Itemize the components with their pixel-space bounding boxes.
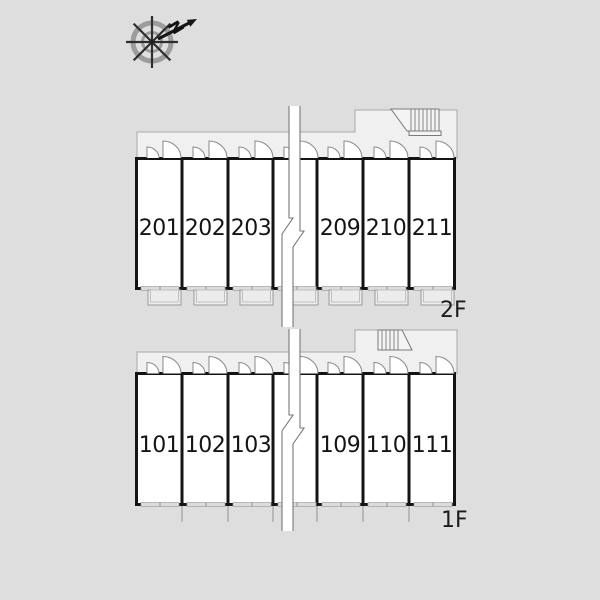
unit-number-111: 111 (409, 435, 455, 457)
balcony-icon (375, 290, 408, 305)
window-icon (233, 503, 271, 507)
balconies-2f (148, 290, 454, 305)
window-icon (187, 503, 225, 507)
unit-windows-1f (141, 503, 452, 507)
window-icon (322, 503, 360, 507)
window-icon (141, 503, 179, 507)
balcony-icon (329, 290, 362, 305)
floor-label-2f: 2F (440, 300, 467, 322)
unit-number-110: 110 (363, 435, 409, 457)
unit-number-211: 211 (409, 218, 455, 240)
unit-number-202: 202 (182, 218, 228, 240)
compass-rose-icon (126, 16, 197, 68)
unit-number-109: 109 (317, 435, 363, 457)
balcony-icon (240, 290, 273, 305)
unit-number-209: 209 (317, 218, 363, 240)
floor-label-1f: 1F (441, 510, 468, 532)
unit-number-210: 210 (363, 218, 409, 240)
floorplan-graphics (0, 0, 600, 600)
window-icon (414, 503, 452, 507)
unit-number-101: 101 (136, 435, 182, 457)
unit-number-201: 201 (136, 218, 182, 240)
unit-number-102: 102 (182, 435, 228, 457)
unit-number-103: 103 (228, 435, 274, 457)
window-icon (368, 503, 406, 507)
floorplan-page: N 201 202 203 209 210 211 101 102 103 10… (0, 0, 600, 600)
balcony-icon (194, 290, 227, 305)
terrace-dividers-1f (182, 506, 409, 522)
balcony-icon (148, 290, 181, 305)
unit-number-203: 203 (228, 218, 274, 240)
